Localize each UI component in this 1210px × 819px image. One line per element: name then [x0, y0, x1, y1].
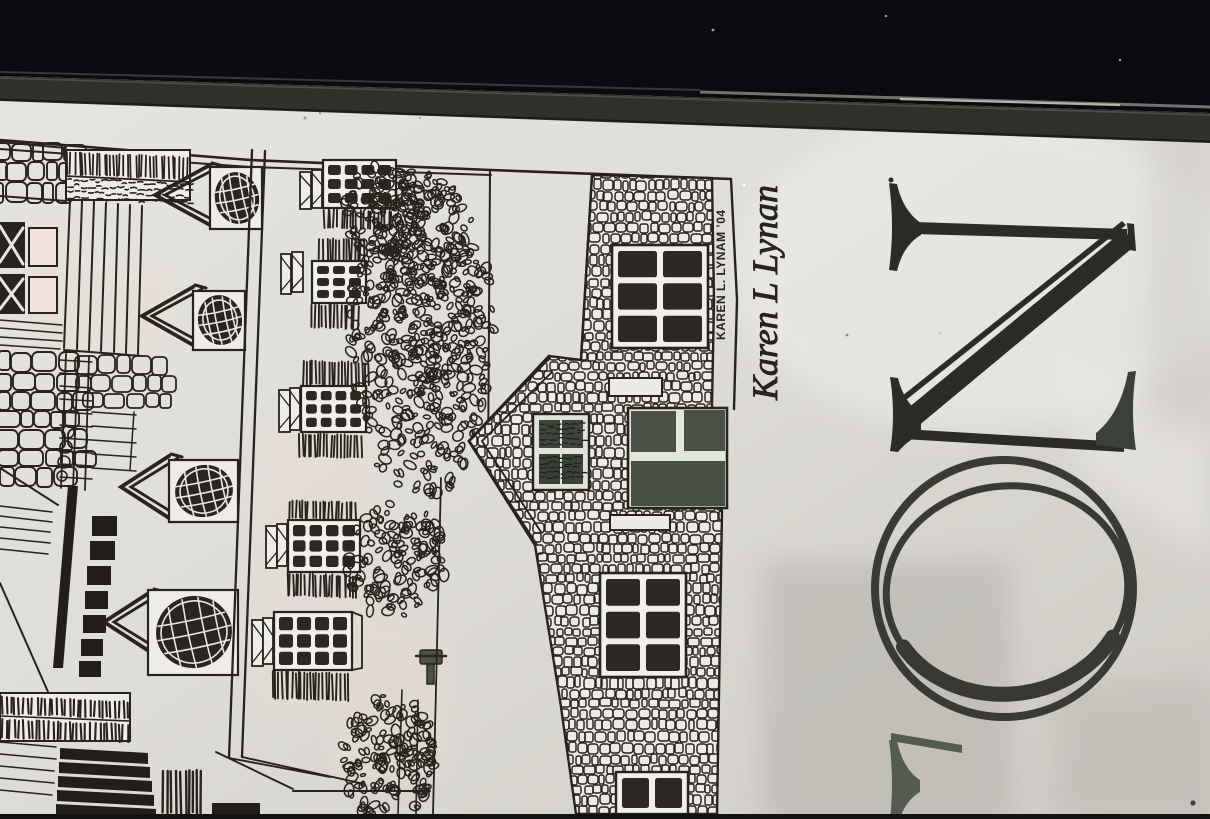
svg-text:Karen L Lynan: Karen L Lynan: [745, 185, 785, 401]
svg-text:KAREN L. LYNAM ’04: KAREN L. LYNAM ’04: [714, 209, 728, 340]
